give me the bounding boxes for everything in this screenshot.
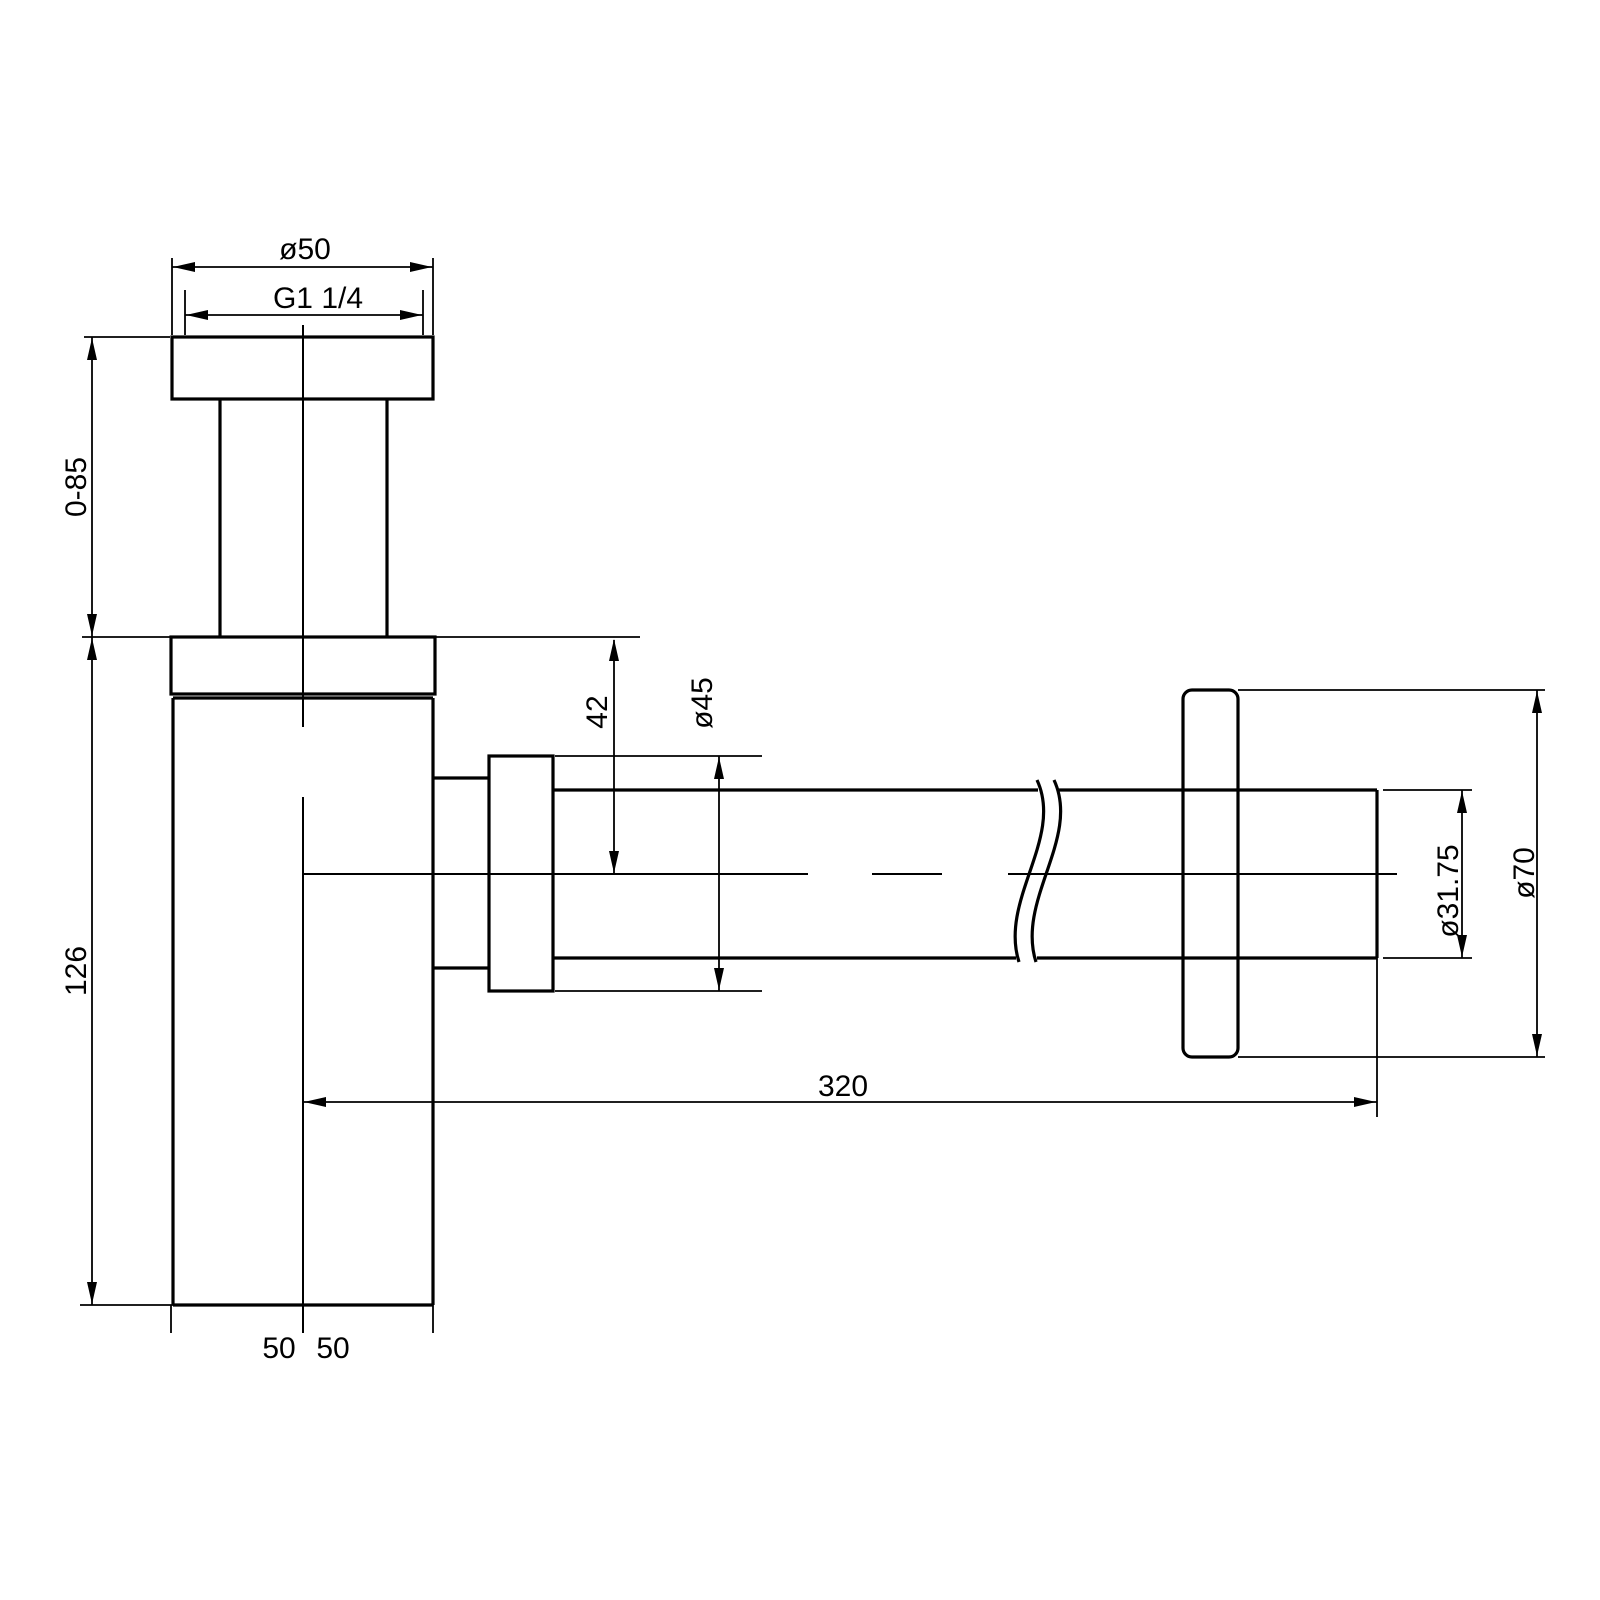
label-inlet-tube-length: 0-85	[60, 457, 93, 517]
break-line-left	[1015, 780, 1044, 962]
label-pipe-diameter: ø31.75	[1432, 844, 1465, 937]
label-thread-size: G1 1/4	[273, 282, 363, 315]
part-outline	[171, 337, 1377, 1305]
d42-arrow-top	[609, 639, 619, 661]
label-wall-flange-diameter: ø70	[1508, 847, 1541, 899]
len085-arrow-top	[87, 338, 97, 360]
len320-arrow-left	[304, 1097, 326, 1107]
dia50-arrow-right	[410, 262, 432, 272]
dia3175-arrow-top	[1457, 791, 1467, 813]
break-line-right	[1032, 780, 1061, 962]
label-top-flange-diameter: ø50	[279, 233, 331, 266]
label-outlet-centre-drop: 42	[581, 695, 614, 728]
technical-drawing-canvas: ø50 G1 1/4 0-85 126 42 ø45 ø31.75 ø70 32…	[0, 0, 1600, 1600]
dia45-arrow-bottom	[714, 968, 724, 990]
label-pipe-length: 320	[818, 1070, 868, 1103]
label-body-height: 126	[60, 946, 93, 996]
thread-arrow-right	[400, 310, 422, 320]
centerlines	[303, 325, 1397, 1333]
label-bottom-half-width-right: 50	[316, 1332, 349, 1365]
thread-arrow-left	[186, 310, 208, 320]
label-outlet-nut-diameter: ø45	[686, 677, 719, 729]
dia70-arrow-bottom	[1532, 1034, 1542, 1056]
dimension-labels: ø50 G1 1/4 0-85 126 42 ø45 ø31.75 ø70 32…	[60, 233, 1541, 1365]
h126-arrow-bottom	[87, 1282, 97, 1304]
dia50-arrow-left	[173, 262, 195, 272]
dimension-arrowheads	[87, 262, 1542, 1304]
dia45-arrow-top	[714, 757, 724, 779]
label-bottom-half-width-left: 50	[262, 1332, 295, 1365]
dia70-arrow-top	[1532, 691, 1542, 713]
bottle-trap-drawing: ø50 G1 1/4 0-85 126 42 ø45 ø31.75 ø70 32…	[0, 0, 1600, 1600]
len320-arrow-right	[1354, 1097, 1376, 1107]
h126-arrow-top	[87, 638, 97, 660]
d42-arrow-bottom	[609, 851, 619, 873]
dimension-lines	[80, 258, 1545, 1333]
len085-arrow-bottom	[87, 614, 97, 636]
